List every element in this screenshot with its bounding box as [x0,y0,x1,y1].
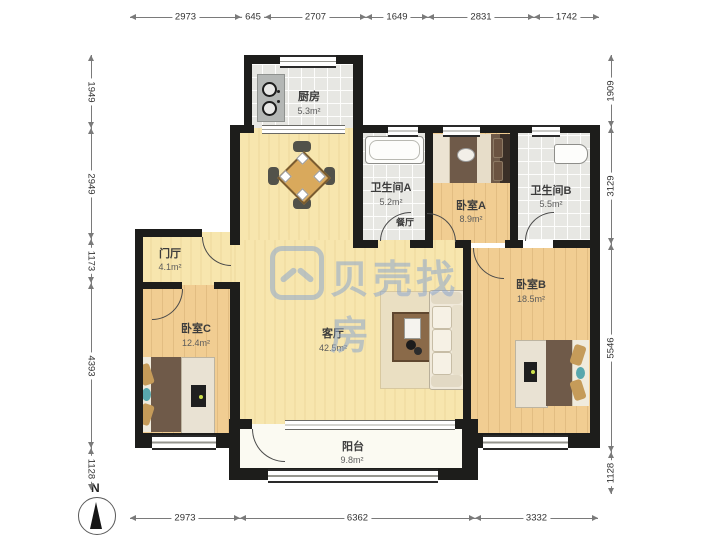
dim-bottom-3: 3332 [475,511,598,525]
room-area-bathroom-b: 5.5m² [539,199,562,209]
wall [143,282,182,289]
dim-value: 1649 [383,12,410,23]
room-area-kitchen: 5.3m² [297,106,320,116]
dim-value: 1949 [86,78,97,105]
decor-ball [414,347,422,355]
floorplan-canvas: 厨房 5.3m² 卫生间A 5.2m² 卧室A 8.9m² 卫生间B 5.5m²… [0,0,720,540]
dim-left-1: 1949 [84,55,98,128]
dim-right-2: 3129 [604,127,618,244]
pillow [493,161,503,181]
blanket [477,134,491,183]
window [443,125,480,137]
dim-right-4: 1128 [604,452,618,494]
window [532,125,560,137]
dim-value: 2707 [302,12,329,23]
room-label-bathroom-a: 卫生间A [371,179,412,195]
stove [257,74,285,122]
dim-bottom-1: 2973 [130,511,240,525]
room-area-bedroom-c: 12.4m² [182,338,210,348]
dim-left-4: 4393 [84,283,98,448]
knob-dot [277,90,280,93]
dim-left-5: 1128 [84,448,98,490]
room-area-living: 42.5m² [319,343,347,353]
room-label-dining: 餐厅 [396,216,414,229]
dim-top-4: 1649 [366,10,428,24]
room-label-bedroom-b: 卧室B [516,276,546,292]
burner-icon [262,82,277,97]
room-area-foyer: 4.1m² [158,262,181,272]
sofa-cushion [432,352,452,375]
wall [410,240,425,248]
knob-dot [277,100,280,103]
deco-oval [457,148,475,162]
dim-bottom-2: 6362 [240,511,475,525]
sofa [429,290,466,390]
room-area-balcony: 9.8m² [340,455,363,465]
sofa-back [452,305,463,375]
window [388,125,418,137]
pillow [493,138,503,158]
dim-value: 1173 [86,248,97,274]
wall [590,125,600,448]
room-label-bathroom-b: 卫生间B [531,182,572,198]
tray [404,318,421,339]
dining-table-set [264,138,340,214]
dim-value: 1128 [606,460,617,486]
wall [455,240,471,248]
wall [353,55,363,248]
dim-value: 4393 [86,352,97,379]
bed-b [515,340,588,406]
bed-a [433,134,512,183]
window [285,420,455,430]
sofa-cushion [432,329,452,352]
wall [363,240,378,248]
bed-c [137,357,213,432]
room-area-bathroom-a: 5.2m² [379,197,402,207]
room-label-foyer: 门厅 [159,245,181,261]
dim-value: 2831 [467,12,494,23]
dim-left-2: 2949 [84,128,98,239]
dim-left-3: 1173 [84,239,98,283]
sofa-armrest [431,292,462,304]
wall [553,240,600,248]
room-area-bedroom-b: 18.5m² [517,294,545,304]
wall [510,133,518,248]
sliding-door [262,125,345,134]
dim-value: 3332 [523,513,550,524]
window [280,55,336,68]
room-area-bedroom-a: 8.9m² [459,214,482,224]
room-label-bedroom-a: 卧室A [456,197,486,213]
dim-top-1: 2973 [130,10,241,24]
duvet [546,340,574,406]
dim-value: 1909 [606,77,617,104]
dim-right-1: 1909 [604,55,618,127]
wall [244,55,252,133]
deco-oval [576,367,585,379]
wall [230,282,240,433]
dim-right-3: 5546 [604,244,618,452]
sofa-cushion [432,306,452,329]
window [152,435,216,450]
wall [463,248,471,433]
dim-value: 645 [242,12,264,23]
wall [230,125,240,245]
dim-value: 2973 [171,513,198,524]
window [483,435,568,450]
sofa-armrest [431,375,462,387]
window [268,469,438,483]
wall [229,419,252,429]
dim-value: 6362 [344,513,371,524]
deco-oval [142,388,151,401]
room-label-bedroom-c: 卧室C [181,320,211,336]
room-label-living: 客厅 [322,325,344,341]
washbasin [554,144,588,164]
tub-inner [369,140,420,160]
dim-top-2: 645 [241,10,265,24]
dim-value: 1128 [86,456,97,482]
room-label-kitchen: 厨房 [298,88,320,104]
wall [214,282,230,289]
bathtub [365,136,424,164]
room-label-balcony: 阳台 [342,438,364,454]
burner-icon [262,101,277,116]
dim-value: 2949 [86,170,97,197]
dim-top-5: 2831 [428,10,534,24]
dim-top-3: 2707 [265,10,366,24]
dim-value: 1742 [553,12,580,23]
wall [135,229,202,237]
dim-value: 5546 [606,334,617,361]
tv-dot [199,395,203,399]
duvet [151,357,183,432]
compass-needle-icon [90,502,102,529]
wall [505,240,523,248]
blanket [433,134,450,183]
chair [293,141,311,152]
tv-dot [531,370,535,374]
wall [135,229,143,448]
dim-value: 2973 [172,12,199,23]
coffee-table [392,312,433,362]
dim-top-6: 1742 [534,10,599,24]
dim-value: 3129 [606,172,617,199]
